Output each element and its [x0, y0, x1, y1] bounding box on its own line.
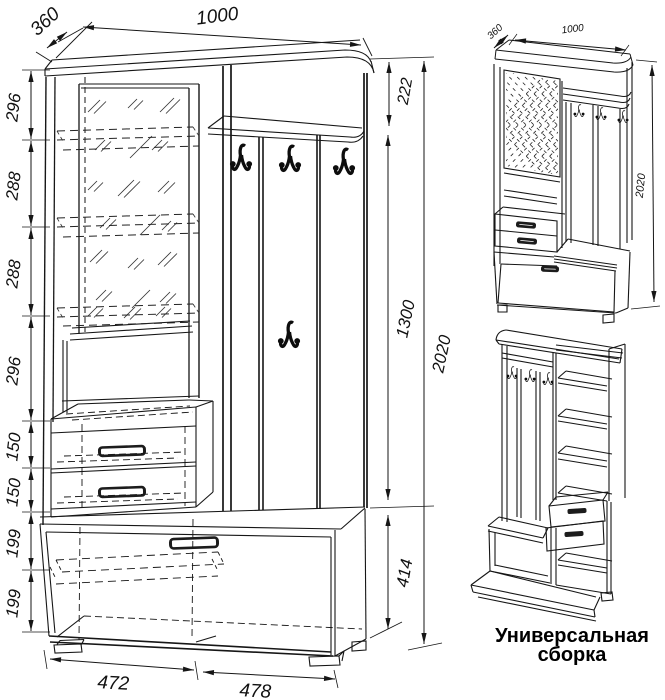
svg-text:478: 478	[239, 680, 272, 700]
svg-text:199: 199	[2, 588, 24, 619]
svg-text:288: 288	[2, 258, 25, 290]
svg-text:150: 150	[2, 431, 24, 462]
svg-text:472: 472	[97, 672, 130, 695]
svg-text:150: 150	[2, 477, 24, 508]
svg-text:288: 288	[2, 170, 25, 202]
svg-text:296: 296	[2, 92, 25, 124]
svg-text:296: 296	[2, 355, 25, 387]
svg-text:сборка: сборка	[538, 644, 608, 666]
svg-text:199: 199	[2, 528, 24, 559]
